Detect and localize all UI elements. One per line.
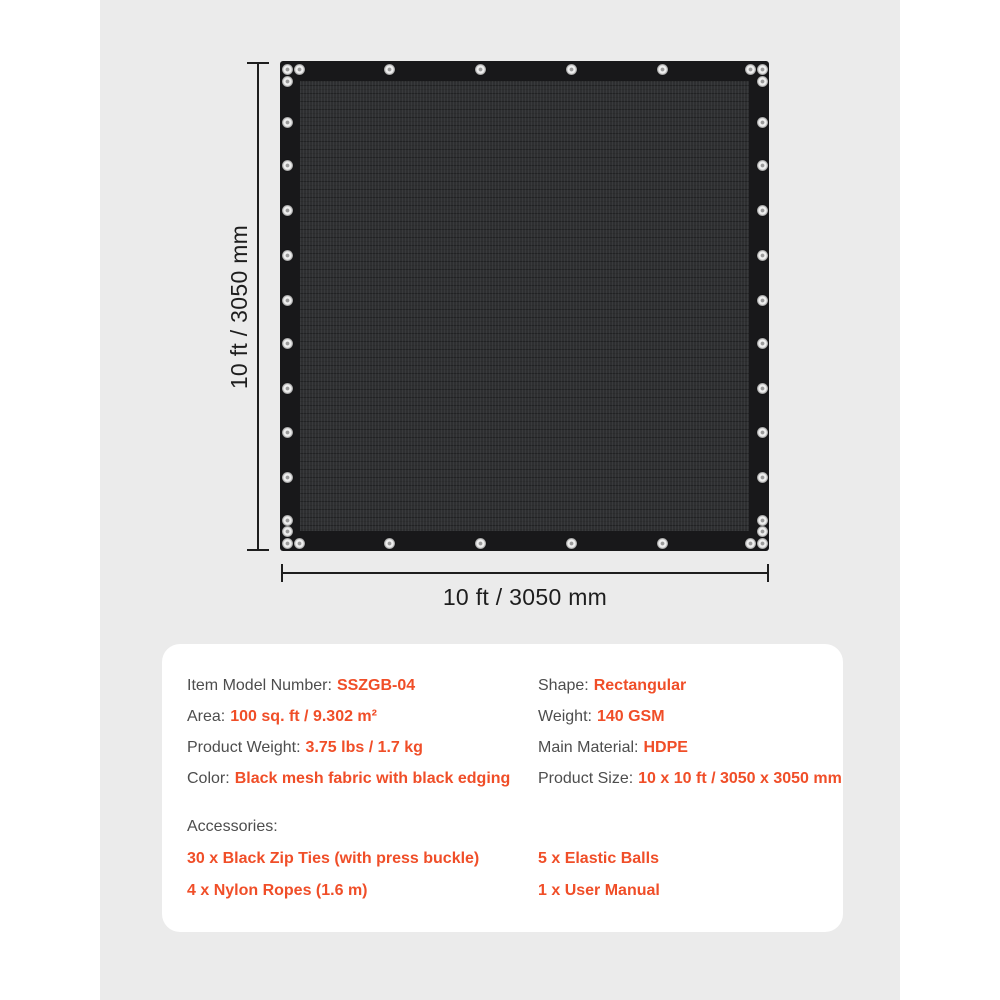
- grommet-icon: [282, 160, 293, 171]
- width-dimension-tick-left: [281, 564, 283, 582]
- spec-label: Shape:: [538, 677, 589, 694]
- grommet-icon: [566, 538, 577, 549]
- grommet-icon: [282, 117, 293, 128]
- height-dimension-tick-top: [247, 62, 269, 64]
- accessory-item-elastic-balls: 5 x Elastic Balls: [538, 848, 660, 869]
- grommet-icon: [282, 538, 293, 549]
- width-dimension-label: 10 ft / 3050 mm: [281, 584, 769, 610]
- grommet-icon: [757, 427, 768, 438]
- spec-row-material: Main Material:HDPE: [538, 737, 842, 758]
- width-dimension-line: [281, 572, 769, 574]
- spec-label: Product Size:: [538, 770, 633, 787]
- spec-row-area: Area:100 sq. ft / 9.302 m²: [187, 706, 538, 727]
- grommet-icon: [757, 526, 768, 537]
- grommet-icon: [566, 64, 577, 75]
- height-dimension-tick-bottom: [247, 549, 269, 551]
- grommet-icon: [745, 64, 756, 75]
- grommet-icon: [282, 64, 293, 75]
- spec-row-shape: Shape:Rectangular: [538, 675, 842, 696]
- grommet-icon: [282, 76, 293, 87]
- grommet-icon: [475, 64, 486, 75]
- grommet-icon: [282, 515, 293, 526]
- grommet-icon: [282, 338, 293, 349]
- grommet-icon: [757, 472, 768, 483]
- spec-value: 10 x 10 ft / 3050 x 3050 mm: [638, 770, 842, 787]
- grommet-icon: [757, 538, 768, 549]
- grommet-icon: [757, 160, 768, 171]
- spec-label: Product Weight:: [187, 739, 301, 756]
- grommet-icon: [757, 76, 768, 87]
- accessory-item-zip-ties: 30 x Black Zip Ties (with press buckle): [187, 848, 538, 869]
- grommet-icon: [757, 117, 768, 128]
- spec-row-product-size: Product Size:10 x 10 ft / 3050 x 3050 mm: [538, 768, 842, 789]
- grommet-icon: [475, 538, 486, 549]
- spec-value: 100 sq. ft / 9.302 m²: [230, 708, 377, 725]
- spec-value: 3.75 lbs / 1.7 kg: [306, 739, 423, 756]
- width-dimension-tick-right: [767, 564, 769, 582]
- accessory-item-nylon-ropes: 4 x Nylon Ropes (1.6 m): [187, 880, 538, 901]
- spec-row-model-number: Item Model Number:SSZGB-04: [187, 675, 538, 696]
- height-dimension-line: [257, 63, 259, 551]
- grommet-icon: [745, 538, 756, 549]
- grommet-icon: [294, 538, 305, 549]
- grommet-icon: [757, 250, 768, 261]
- grommet-icon: [294, 64, 305, 75]
- grommet-icon: [282, 427, 293, 438]
- grommet-icon: [282, 250, 293, 261]
- grommet-icon: [282, 472, 293, 483]
- spec-row-product-weight: Product Weight:3.75 lbs / 1.7 kg: [187, 737, 538, 758]
- grommet-icon: [657, 538, 668, 549]
- grommet-icon: [757, 64, 768, 75]
- spec-row-gsm-weight: Weight:140 GSM: [538, 706, 842, 727]
- height-dimension-label: 10 ft / 3050 mm: [226, 207, 252, 407]
- spec-label: Area:: [187, 708, 225, 725]
- mesh-fabric: [300, 81, 749, 531]
- spec-label: Main Material:: [538, 739, 638, 756]
- grommet-icon: [384, 64, 395, 75]
- spec-card: Item Model Number:SSZGB-04 Shape:Rectang…: [162, 644, 843, 932]
- grommet-icon: [757, 515, 768, 526]
- shade-cloth-diagram: [280, 61, 769, 551]
- grommet-icon: [757, 338, 768, 349]
- spec-label: Weight:: [538, 708, 592, 725]
- grommet-icon: [757, 205, 768, 216]
- spec-row-color: Color:Black mesh fabric with black edgin…: [187, 768, 538, 789]
- grommet-icon: [757, 383, 768, 394]
- spec-value: SSZGB-04: [337, 677, 415, 694]
- grommet-icon: [282, 295, 293, 306]
- accessory-item-user-manual: 1 x User Manual: [538, 880, 660, 901]
- grommet-icon: [657, 64, 668, 75]
- spec-value: Rectangular: [594, 677, 686, 694]
- accessories-grid: 30 x Black Zip Ties (with press buckle) …: [187, 848, 660, 901]
- specs-grid: Item Model Number:SSZGB-04 Shape:Rectang…: [187, 675, 842, 789]
- grommet-icon: [282, 383, 293, 394]
- grommet-icon: [282, 526, 293, 537]
- spec-label: Color:: [187, 770, 230, 787]
- spec-value: Black mesh fabric with black edging: [235, 770, 511, 787]
- accessories-title: Accessories:: [187, 816, 278, 837]
- spec-value: HDPE: [643, 739, 687, 756]
- spec-label: Item Model Number:: [187, 677, 332, 694]
- grommet-icon: [384, 538, 395, 549]
- grommet-icon: [757, 295, 768, 306]
- grommet-icon: [282, 205, 293, 216]
- spec-value: 140 GSM: [597, 708, 665, 725]
